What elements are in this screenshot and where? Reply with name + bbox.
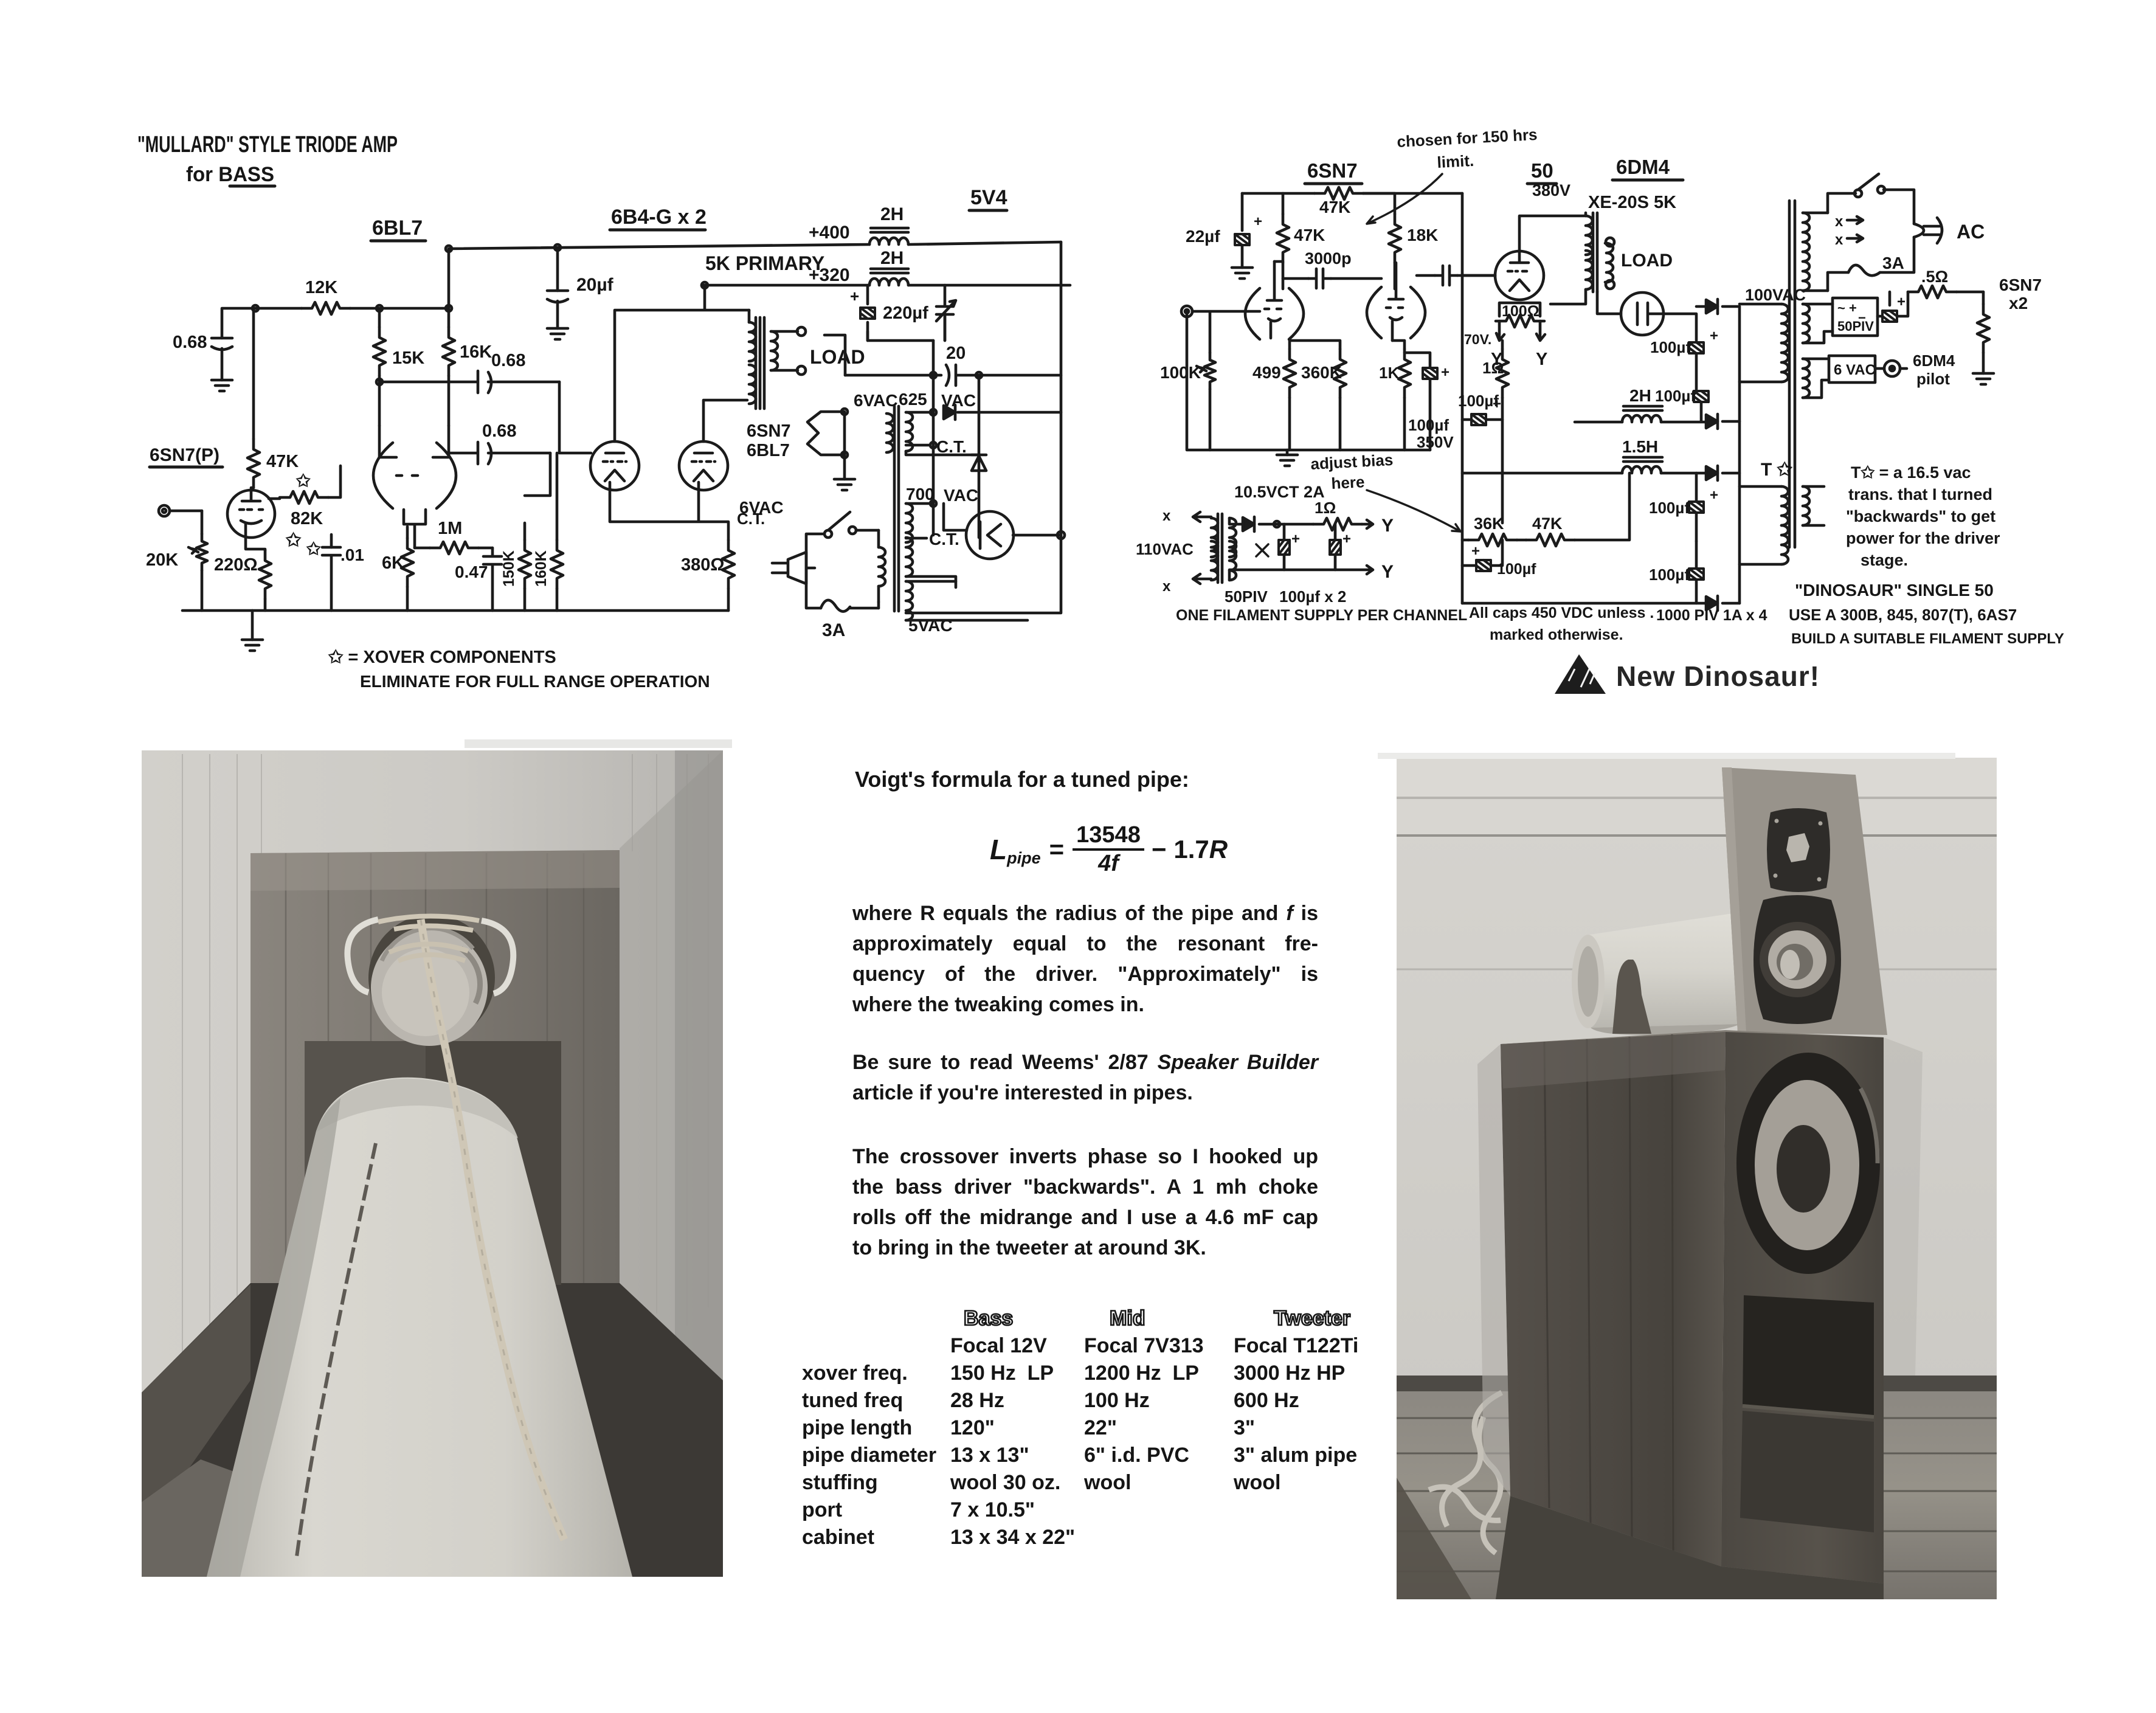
svg-text:ELIMINATE FOR FULL RANGE OPERA: ELIMINATE FOR FULL RANGE OPERATION xyxy=(360,672,710,691)
svg-text:100µf: 100µf xyxy=(1649,566,1690,584)
svg-text:Y: Y xyxy=(1381,562,1394,582)
svg-text:✩: ✩ xyxy=(285,530,302,550)
svg-text:82K: 82K xyxy=(291,509,323,528)
svg-text:36K: 36K xyxy=(1474,514,1504,533)
svg-text:6SN7: 6SN7 xyxy=(747,421,791,441)
svg-text:1Ω: 1Ω xyxy=(1315,499,1336,517)
svg-text:LOAD: LOAD xyxy=(810,346,865,368)
svg-text:220µf: 220µf xyxy=(883,303,928,323)
svg-text:6K: 6K xyxy=(382,553,404,573)
svg-text:6DM4: 6DM4 xyxy=(1913,351,1955,370)
svg-text:stage.: stage. xyxy=(1861,551,1908,569)
svg-text:C.T.: C.T. xyxy=(936,437,967,456)
svg-text:power for the driver: power for the driver xyxy=(1846,529,2000,547)
svg-text:12K: 12K xyxy=(305,278,337,297)
svg-text:2H: 2H xyxy=(880,248,904,268)
svg-text:−: − xyxy=(1858,310,1866,325)
svg-text:x: x xyxy=(1835,213,1843,230)
svg-text:T ✩: T ✩ xyxy=(1761,460,1793,480)
svg-text:+: + xyxy=(1342,531,1351,547)
svg-text:2H: 2H xyxy=(880,204,904,224)
svg-text:LOAD: LOAD xyxy=(1621,251,1673,271)
svg-text:+: + xyxy=(1441,364,1449,381)
svg-text:adjust bias: adjust bias xyxy=(1310,451,1394,473)
svg-text:110VAC: 110VAC xyxy=(1136,540,1194,558)
svg-text:100K: 100K xyxy=(1160,363,1201,382)
svg-text:100µf: 100µf xyxy=(1497,561,1536,578)
svg-text:6DM4: 6DM4 xyxy=(1616,156,1670,178)
svg-text:1000 PIV 1A x 4: 1000 PIV 1A x 4 xyxy=(1656,607,1767,624)
svg-text:"backwards" to get: "backwards" to get xyxy=(1846,507,1995,525)
svg-text:+: + xyxy=(850,287,859,305)
svg-text:6SN7(P): 6SN7(P) xyxy=(150,445,219,465)
svg-text:USE A 300B, 845, 807(T), 6AS7: USE A 300B, 845, 807(T), 6AS7 xyxy=(1789,606,2017,624)
svg-text:marked otherwise.: marked otherwise. xyxy=(1490,626,1623,643)
svg-text:+: + xyxy=(1471,543,1480,559)
svg-text:380V: 380V xyxy=(1532,181,1570,199)
svg-text:0.68: 0.68 xyxy=(491,351,525,370)
svg-text:6B4-G x 2: 6B4-G x 2 xyxy=(611,206,707,229)
svg-text:+: + xyxy=(1493,396,1501,412)
svg-text:50PIV: 50PIV xyxy=(1837,319,1874,334)
svg-text:6VAC: 6VAC xyxy=(739,498,784,517)
svg-text:50: 50 xyxy=(1531,159,1553,182)
svg-text:AC: AC xyxy=(1957,221,1985,243)
svg-text:625: 625 xyxy=(899,390,927,409)
svg-text:1Ω: 1Ω xyxy=(1482,359,1504,377)
svg-text:100Ω: 100Ω xyxy=(1502,303,1539,320)
svg-text:16K: 16K xyxy=(460,342,492,362)
svg-text:47K: 47K xyxy=(1319,198,1350,216)
svg-text:ONE FILAMENT SUPPLY PER CHANNE: ONE FILAMENT SUPPLY PER CHANNEL xyxy=(1176,607,1467,624)
svg-text:20: 20 xyxy=(946,344,966,363)
svg-text:✩: ✩ xyxy=(306,539,322,558)
svg-text:3A: 3A xyxy=(1882,254,1904,272)
svg-text:100µf: 100µf xyxy=(1650,338,1691,356)
svg-text:+: + xyxy=(1291,531,1300,547)
svg-text:100VAC: 100VAC xyxy=(1745,286,1806,304)
svg-text:BUILD A SUITABLE FILAMENT SUPP: BUILD A SUITABLE FILAMENT SUPPLY xyxy=(1791,631,2064,647)
svg-text:70V.: 70V. xyxy=(1464,331,1491,347)
svg-text:x: x xyxy=(1163,508,1171,524)
svg-text:6SN7: 6SN7 xyxy=(1999,275,2042,294)
svg-text:360K: 360K xyxy=(1301,363,1342,382)
svg-text:C.T.: C.T. xyxy=(929,530,959,549)
svg-text:VAC: VAC xyxy=(944,486,978,505)
svg-text:Y: Y xyxy=(1381,516,1394,536)
svg-text:"DINOSAUR" SINGLE 50: "DINOSAUR" SINGLE 50 xyxy=(1795,581,1994,600)
svg-text:47K: 47K xyxy=(1532,514,1563,533)
svg-text:5VAC: 5VAC xyxy=(908,616,953,635)
svg-text:chosen for 150 hrs: chosen for 150 hrs xyxy=(1397,125,1538,151)
svg-text:XE-20S 5K: XE-20S 5K xyxy=(1588,193,1676,212)
svg-text:10.5VCT 2A: 10.5VCT 2A xyxy=(1234,483,1325,501)
svg-text:20K: 20K xyxy=(146,550,178,570)
svg-text:100µf: 100µf xyxy=(1408,416,1449,434)
svg-text:220Ω: 220Ω xyxy=(214,555,258,575)
svg-text:✩: ✩ xyxy=(295,471,311,490)
svg-text:15K: 15K xyxy=(392,348,424,368)
svg-text:100µf: 100µf xyxy=(1655,387,1696,405)
svg-text:150K: 150K xyxy=(500,550,517,587)
svg-text:here: here xyxy=(1331,472,1365,493)
svg-text:6SN7: 6SN7 xyxy=(1307,159,1358,182)
svg-text:New Dinosaur!: New Dinosaur! xyxy=(1616,660,1820,692)
svg-text:6VAC: 6VAC xyxy=(854,391,898,410)
svg-text:100µf: 100µf xyxy=(1649,499,1690,517)
svg-text:T✩ = a 16.5 vac: T✩ = a 16.5 vac xyxy=(1851,463,1971,482)
svg-text:Y: Y xyxy=(1536,350,1547,369)
svg-text:"MULLARD" STYLE TRIODE AMP: "MULLARD" STYLE TRIODE AMP xyxy=(137,132,398,157)
svg-text:All caps 450 VDC unless .: All caps 450 VDC unless . xyxy=(1469,604,1654,621)
svg-text:5V4: 5V4 xyxy=(970,186,1007,209)
svg-text:x2: x2 xyxy=(2009,294,2028,313)
svg-text:2H: 2H xyxy=(1629,386,1651,405)
svg-text:+: + xyxy=(1254,213,1262,230)
svg-text:160K: 160K xyxy=(533,550,550,587)
svg-text:for BASS: for BASS xyxy=(186,163,274,186)
svg-text:trans. that I turned: trans. that I turned xyxy=(1848,485,1992,504)
svg-text:0.68: 0.68 xyxy=(173,333,207,352)
svg-text:1K: 1K xyxy=(1379,364,1399,382)
svg-text:1.5H: 1.5H xyxy=(1622,437,1658,456)
svg-text:pilot: pilot xyxy=(1916,370,1950,388)
svg-text:20µf: 20µf xyxy=(576,275,614,295)
svg-text:+400: +400 xyxy=(809,223,850,243)
svg-text:x: x xyxy=(1835,232,1843,248)
svg-text:limit.: limit. xyxy=(1437,151,1474,171)
svg-text:~ +: ~ + xyxy=(1837,300,1857,316)
svg-text:380Ω: 380Ω xyxy=(681,555,725,575)
svg-text:1M: 1M xyxy=(438,519,462,538)
svg-text:x: x xyxy=(1163,578,1171,595)
svg-text:350V: 350V xyxy=(1417,433,1454,451)
svg-text:47K: 47K xyxy=(1294,226,1325,244)
svg-text:5K PRIMARY: 5K PRIMARY xyxy=(705,252,824,274)
svg-text:50PIV: 50PIV xyxy=(1225,587,1268,606)
svg-text:+: + xyxy=(1710,328,1718,344)
svg-text:✩ = XOVER COMPONENTS: ✩ = XOVER COMPONENTS xyxy=(328,648,556,667)
svg-text:6 VAC: 6 VAC xyxy=(1834,362,1876,378)
svg-text:+: + xyxy=(1710,487,1718,504)
svg-text:3000p: 3000p xyxy=(1305,249,1352,268)
svg-text:6BL7: 6BL7 xyxy=(372,216,423,240)
svg-text:499: 499 xyxy=(1252,363,1281,382)
svg-text:3A: 3A xyxy=(822,620,845,640)
svg-text:6BL7: 6BL7 xyxy=(747,441,790,460)
svg-text:22µf: 22µf xyxy=(1186,227,1220,246)
svg-text:.5Ω: .5Ω xyxy=(1921,268,1948,286)
svg-text:47K: 47K xyxy=(266,452,299,471)
svg-text:.01: .01 xyxy=(340,545,364,564)
svg-text:0.47: 0.47 xyxy=(455,562,488,581)
svg-text:100µf x 2: 100µf x 2 xyxy=(1279,587,1346,606)
svg-text:+: + xyxy=(1897,294,1906,310)
svg-text:0.68: 0.68 xyxy=(482,421,516,441)
svg-text:18K: 18K xyxy=(1407,226,1438,244)
